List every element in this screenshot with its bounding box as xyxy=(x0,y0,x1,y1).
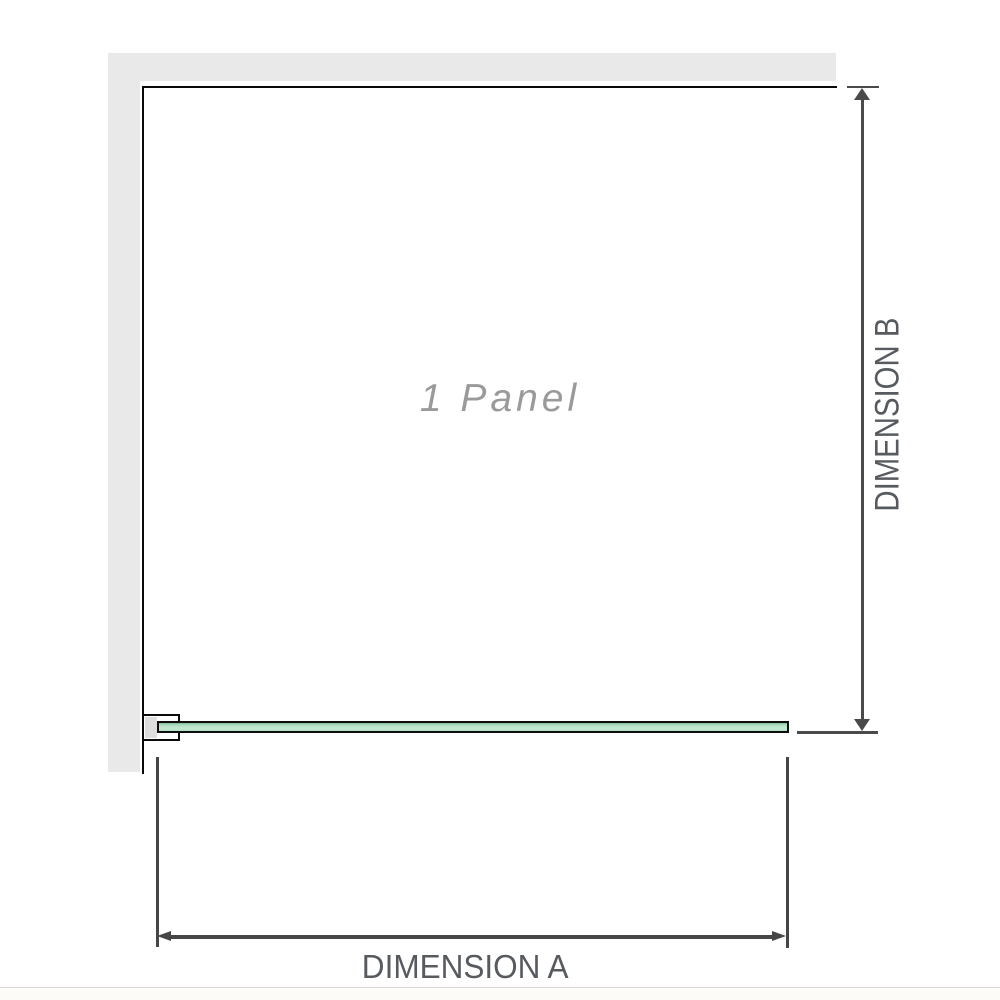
svg-text:DIMENSION B: DIMENSION B xyxy=(868,318,906,512)
svg-text:DIMENSION A: DIMENSION A xyxy=(362,948,569,985)
